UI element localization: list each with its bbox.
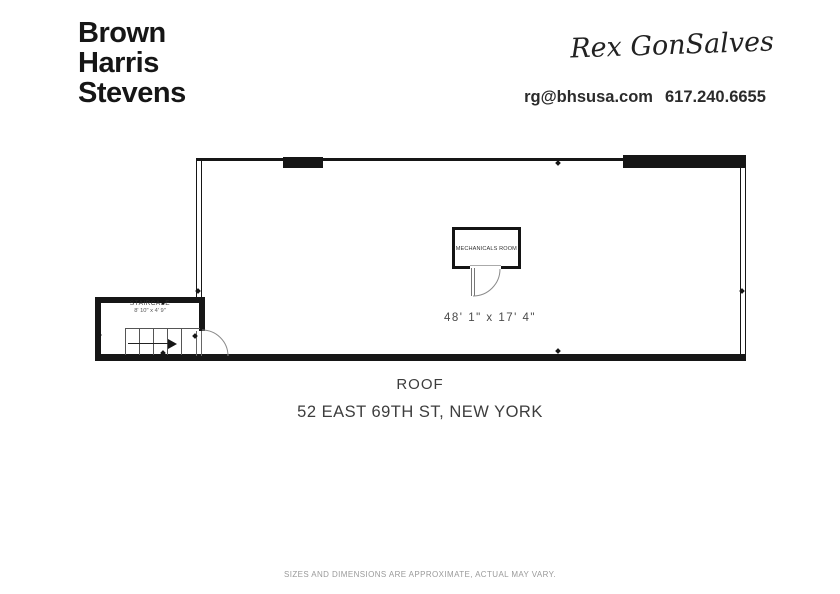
stairs-direction-line <box>128 343 170 344</box>
staircase-left-wall <box>95 297 101 361</box>
staircase-right-wall <box>199 297 205 331</box>
staircase-label: STAIRCASE <box>115 299 186 306</box>
main-area-dimensions: 48' 1" x 17' 4" <box>420 312 560 324</box>
agent-phone: 617.240.6655 <box>665 88 766 106</box>
tick-mark <box>555 160 561 166</box>
main-bottom-wall <box>95 354 746 361</box>
main-right-wall <box>740 158 746 356</box>
brand-logo-line-1: Brown <box>78 18 186 48</box>
agent-signature: Rex GonSalves <box>554 26 791 89</box>
floor-plan-page: Brown Harris Stevens Rex GonSalves rg@bh… <box>0 0 840 594</box>
mechanicals-door-swing-arc <box>472 267 503 298</box>
staircase-dimensions: 8' 10" x 4' 9" <box>115 307 186 313</box>
mechanicals-door-threshold <box>470 265 501 266</box>
main-left-wall <box>196 158 202 297</box>
mechanicals-room: MECHANICALS ROOM <box>452 227 521 269</box>
stair-tread-1 <box>125 328 126 355</box>
top-wall-thick-segment-2 <box>623 155 746 168</box>
brand-logo: Brown Harris Stevens <box>78 18 186 108</box>
disclaimer-text: SIZES AND DIMENSIONS ARE APPROXIMATE, AC… <box>0 570 840 579</box>
stairs-top-edge <box>125 328 200 329</box>
agent-contact: rg@bhsusa.com617.240.6655 <box>510 88 780 107</box>
mechanicals-room-label: MECHANICALS ROOM <box>456 245 517 251</box>
staircase-door-swing-arc <box>200 328 232 358</box>
floor-name-caption: ROOF <box>0 376 840 393</box>
stair-tread-3 <box>153 328 154 355</box>
stairs-direction-arrow-icon <box>168 339 177 349</box>
staircase-labels: STAIRCASE 8' 10" x 4' 9" <box>115 299 186 313</box>
brand-logo-line-2: Harris <box>78 48 186 78</box>
top-wall-thick-segment-1 <box>283 157 323 168</box>
stair-tread-5 <box>181 328 182 355</box>
address-caption: 52 EAST 69TH ST, NEW YORK <box>0 403 840 422</box>
tick-mark <box>555 348 561 354</box>
brand-logo-line-3: Stevens <box>78 78 186 108</box>
agent-email: rg@bhsusa.com <box>524 88 653 106</box>
stair-tread-2 <box>139 328 140 355</box>
